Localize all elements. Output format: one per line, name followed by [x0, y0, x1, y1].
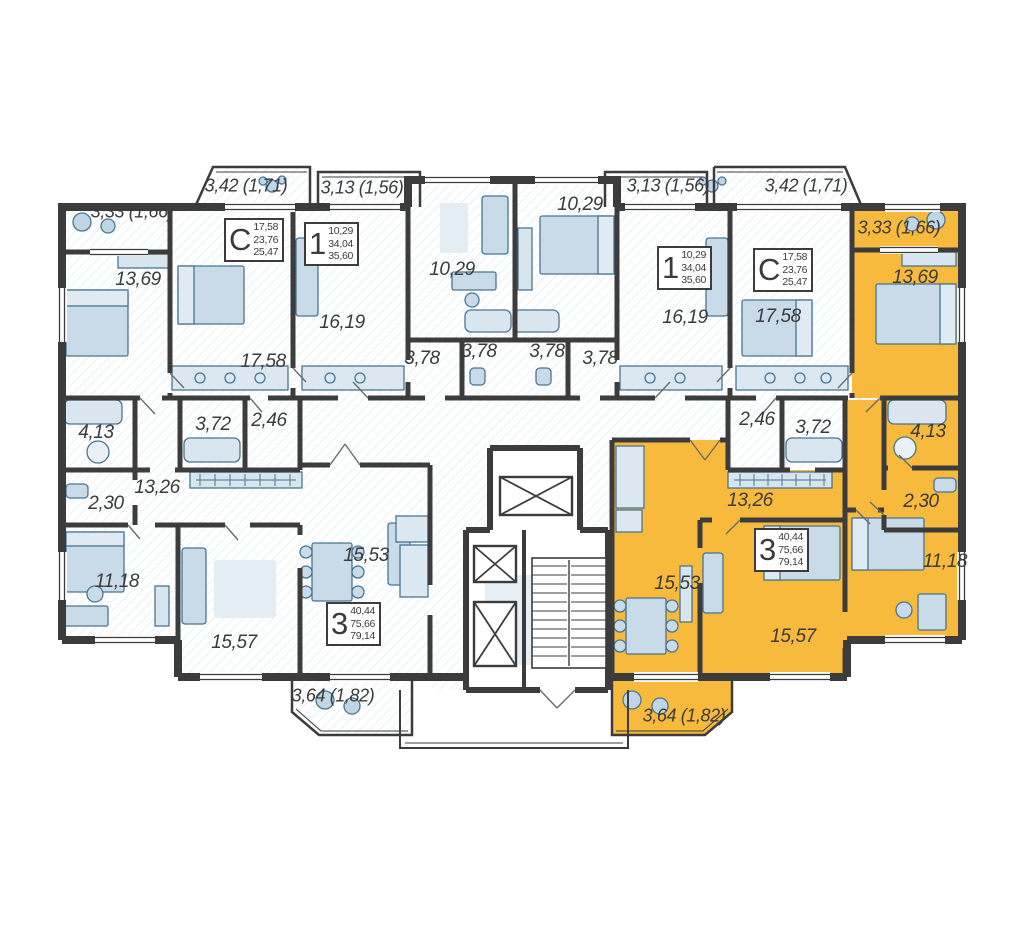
- apartment-stamp: 1 10,29 34,04 35,60: [657, 246, 712, 290]
- room-label: 4,13: [78, 422, 113, 444]
- room-label: 2,46: [251, 410, 286, 432]
- room-label: 3,78: [582, 348, 617, 370]
- floor-plan: 3,33 (1,66) 3,42 (1,71) 3,13 (1,56) 3,13…: [0, 0, 1024, 926]
- balcony-label: 3,64 (1,82): [292, 686, 375, 707]
- apartment-type: С: [758, 254, 780, 285]
- room-label: 3,78: [404, 348, 439, 370]
- room-label: 3,78: [529, 341, 564, 363]
- room-label: 11,18: [95, 571, 139, 593]
- apartment-stamp: 1 10,29 34,04 35,60: [304, 222, 359, 266]
- floor-plan-graphics: [0, 0, 1024, 926]
- room-label: 15,57: [770, 626, 816, 648]
- apartment-stamp: 3 40,44 75,66 79,14: [326, 602, 381, 646]
- room-label: 16,19: [662, 307, 708, 329]
- apartment-type: 3: [331, 608, 348, 639]
- room-label: 13,26: [134, 477, 180, 499]
- staircase: [532, 558, 606, 668]
- elevator-icon: [500, 477, 572, 515]
- apartment-type: С: [229, 224, 251, 255]
- room-label: 13,26: [727, 490, 773, 512]
- balcony-label: 3,13 (1,56): [321, 178, 404, 199]
- room-label: 3,72: [195, 414, 230, 436]
- room-label: 15,53: [654, 573, 700, 595]
- apartment-type: 1: [309, 228, 326, 259]
- room-label: 17,58: [240, 351, 286, 373]
- room-label: 15,53: [343, 545, 389, 567]
- balcony-label: 3,42 (1,71): [765, 176, 848, 197]
- apartment-stamp: С 17,58 23,76 25,47: [224, 218, 284, 262]
- room-label: 16,19: [319, 312, 365, 334]
- balcony-label: 3,33 (1,66): [858, 218, 941, 239]
- room-label: 2,30: [903, 491, 938, 513]
- apartment-type: 3: [759, 534, 776, 565]
- balcony-label: 3,42 (1,71): [205, 176, 288, 197]
- room-label: 13,69: [115, 269, 161, 291]
- room-label: 10,29: [557, 194, 603, 216]
- apartment-stamp: С 17,58 23,76 25,47: [753, 248, 813, 292]
- room-label: 17,58: [755, 306, 801, 328]
- room-label: 4,13: [910, 421, 945, 443]
- balcony-label: 3,13 (1,56): [627, 176, 710, 197]
- elevator-icon: [474, 602, 516, 666]
- balcony-label: 3,33 (1,66): [91, 202, 174, 223]
- room-label: 15,57: [211, 632, 257, 654]
- room-label: 3,72: [795, 417, 830, 439]
- balcony-label: 3,64 (1,82): [643, 706, 726, 727]
- room-label: 2,46: [739, 409, 774, 431]
- room-label: 3,78: [461, 341, 496, 363]
- apartment-stamp: 3 40,44 75,66 79,14: [754, 528, 809, 572]
- apartment-type: 1: [662, 252, 679, 283]
- room-label: 10,29: [429, 259, 475, 281]
- room-label: 2,30: [88, 493, 123, 515]
- elevator-icon: [474, 546, 516, 582]
- room-label: 13,69: [892, 267, 938, 289]
- room-label: 11,18: [923, 551, 967, 573]
